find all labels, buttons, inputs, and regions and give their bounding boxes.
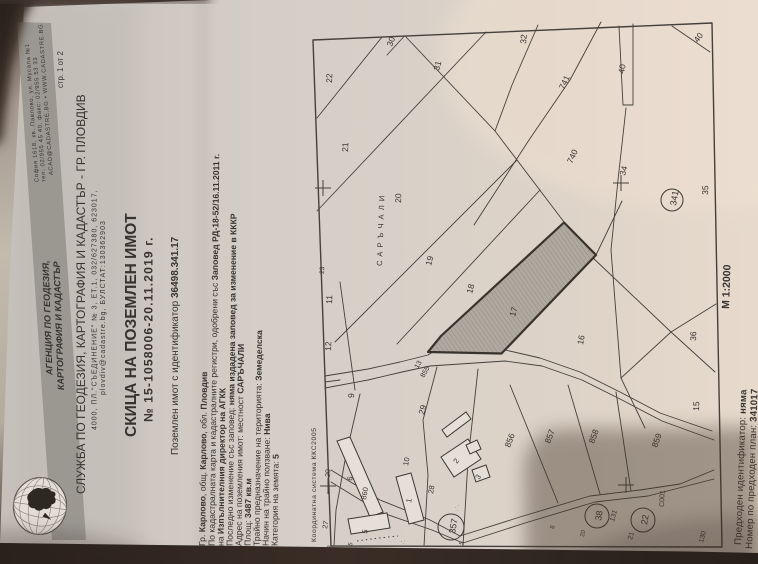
svg-text:Поземлен имот с идентификатор: Поземлен имот с идентификатор 36498.341.… <box>169 236 181 455</box>
svg-text:plovdiv@cadastre.bg, БУЛСТАТ:1: plovdiv@cadastre.bg, БУЛСТАТ:130362903 <box>100 220 107 395</box>
svg-text:16: 16 <box>575 334 587 345</box>
svg-text:12: 12 <box>323 341 333 351</box>
svg-text:4000, ПЛ."СЪЕДИНЕНИЕ" № 3, ЕТ.: 4000, ПЛ."СЪЕДИНЕНИЕ" № 3, ЕТ.1, 032/627… <box>92 189 99 430</box>
svg-text:32: 32 <box>518 34 529 45</box>
svg-text:28: 28 <box>426 485 436 495</box>
svg-text:№ 15-1058006-20.11.2019 г.: № 15-1058006-20.11.2019 г. <box>142 236 156 422</box>
svg-text:15: 15 <box>691 401 701 411</box>
svg-text:10: 10 <box>401 457 411 467</box>
svg-text:35: 35 <box>700 185 710 195</box>
svg-text:СЛУЖБА ПО ГЕОДЕЗИЯ, КАРТОГРАФИ: СЛУЖБА ПО ГЕОДЕЗИЯ, КАРТОГРАФИЯ И КАДАСТ… <box>74 94 88 494</box>
svg-text:21: 21 <box>340 142 350 152</box>
svg-text:М 1:2000: М 1:2000 <box>720 264 734 309</box>
svg-text:22: 22 <box>324 73 334 83</box>
svg-text:11: 11 <box>324 295 334 304</box>
svg-text:20: 20 <box>325 469 332 477</box>
svg-text:Координатна система ККС2005: Координатна система ККС2005 <box>311 427 318 542</box>
svg-text:20: 20 <box>393 193 403 203</box>
svg-text:стр. 1 от 2: стр. 1 от 2 <box>56 51 65 88</box>
svg-text:. ' .: . ' . <box>454 504 461 511</box>
svg-text:36: 36 <box>688 331 698 341</box>
svg-text:23: 23 <box>319 266 326 274</box>
svg-text:СКИЦА НА ПОЗЕМЛЕН ИМОТ: СКИЦА НА ПОЗЕМЛЕН ИМОТ <box>123 213 140 437</box>
svg-text:Категория на земята: 5: Категория на земята: 5 <box>270 454 281 546</box>
svg-text:27: 27 <box>322 520 330 529</box>
svg-text:9: 9 <box>346 393 356 398</box>
svg-text:40: 40 <box>616 63 628 74</box>
